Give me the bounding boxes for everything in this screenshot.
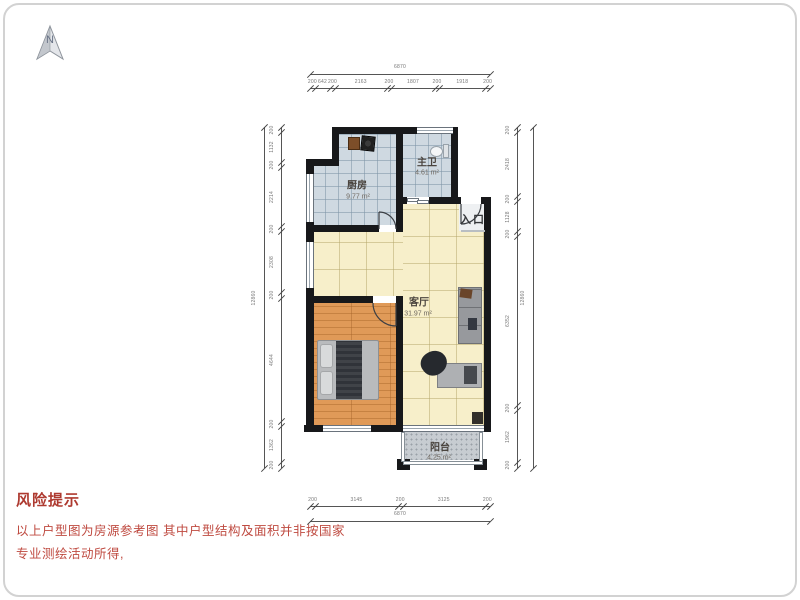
- balcony-area: 4.25 m²: [427, 455, 451, 462]
- risk-warning-line2: 专业测绘活动所得,: [16, 543, 124, 562]
- dim-total-line-top: [310, 74, 490, 75]
- floorplan-canvas: 厨房 9.77 m² 主卫 4.61 m² 客厅 31.97 m² 阳台 4.2…: [0, 0, 800, 600]
- dim-segment-label-right: 2418: [505, 158, 511, 170]
- balcony-label: 阳台: [430, 439, 450, 454]
- entrance-label: 入口: [460, 211, 486, 227]
- dim-total-line-left: [264, 127, 265, 468]
- dim-total-label-top: 6870: [394, 64, 406, 70]
- bedroom-door-arc: [373, 303, 396, 326]
- bed-pillow: [320, 344, 333, 368]
- dim-segment-label-left: 200: [269, 291, 275, 300]
- dim-total-label-left: 12860: [251, 290, 257, 305]
- dim-segment-label-bottom: 3145: [350, 497, 362, 503]
- dim-segment-label-top: 1918: [456, 79, 468, 85]
- dim-segment-label-left: 200: [269, 125, 275, 134]
- dim-segment-label-top: 200: [432, 79, 441, 85]
- dim-segment-label-left: 2214: [269, 191, 275, 203]
- dim-segment-label-top: 200: [328, 79, 337, 85]
- dim-segment-label-left: 200: [269, 224, 275, 233]
- dim-segment-label-top: 1807: [407, 79, 419, 85]
- dim-total-label-bottom: 6870: [394, 511, 406, 517]
- dim-segment-label-left: 4644: [269, 354, 275, 366]
- dim-segment-line-right: [517, 127, 518, 468]
- dim-segment-label-top: 200: [308, 79, 317, 85]
- dim-segment-label-top: 642: [318, 79, 327, 85]
- dim-segment-label-right: 6352: [505, 315, 511, 327]
- bathroom-slider: [417, 200, 429, 204]
- toilet-tank: [443, 144, 449, 158]
- dim-segment-label-right: 200: [505, 230, 511, 239]
- dim-segment-label-bottom: 3125: [438, 497, 450, 503]
- dim-segment-label-right: 200: [505, 125, 511, 134]
- kitchen-door-arc: [379, 212, 396, 229]
- bathroom-label: 主卫: [417, 154, 437, 169]
- desk-item: [464, 366, 477, 384]
- dim-segment-label-top: 200: [385, 79, 394, 85]
- dim-segment-label-right: 200: [505, 461, 511, 470]
- risk-warning-title: 风险提示: [16, 489, 80, 510]
- living-label: 客厅: [409, 294, 429, 309]
- kitchen-label: 厨房: [347, 177, 367, 192]
- bed-pillow: [320, 371, 333, 395]
- dim-segment-label-bottom: 200: [483, 497, 492, 503]
- dim-segment-label-left: 1362: [269, 439, 275, 451]
- floorplan-page: { "compass": { "label": "N" }, "rooms": …: [0, 0, 800, 600]
- bed-duvet: [336, 341, 362, 399]
- dim-segment-label-bottom: 200: [308, 497, 317, 503]
- dim-segment-line-bottom: [310, 506, 490, 507]
- dim-segment-label-right: 200: [505, 195, 511, 204]
- dim-segment-label-left: 200: [269, 461, 275, 470]
- dim-segment-label-bottom: 200: [396, 497, 405, 503]
- stove-pan: [360, 135, 375, 151]
- dim-segment-label-left: 1132: [269, 142, 275, 154]
- stove: [348, 137, 360, 150]
- cabinet-item: [468, 318, 477, 330]
- dim-segment-label-right: 1128: [505, 211, 511, 223]
- dim-total-label-right: 12860: [520, 290, 526, 305]
- kitchen-area: 9.77 m²: [346, 194, 370, 201]
- living-area: 31.97 m²: [404, 311, 432, 318]
- dim-total-line-right: [533, 127, 534, 468]
- dim-segment-label-top: 200: [483, 79, 492, 85]
- dim-segment-label-left: 200: [269, 419, 275, 428]
- dim-segment-label-right: 1962: [505, 431, 511, 443]
- bathroom-area: 4.61 m²: [415, 170, 439, 177]
- risk-warning-line1: 以上户型图为房源参考图 其中户型结构及面积并非按国家: [16, 520, 345, 539]
- dim-segment-label-left: 2308: [269, 256, 275, 268]
- cabinet-item: [459, 288, 472, 299]
- corner-object: [472, 412, 483, 424]
- dim-segment-label-left: 200: [269, 160, 275, 169]
- dim-segment-label-top: 2163: [355, 79, 367, 85]
- dim-segment-label-right: 200: [505, 404, 511, 413]
- dim-segment-line-top: [310, 88, 490, 89]
